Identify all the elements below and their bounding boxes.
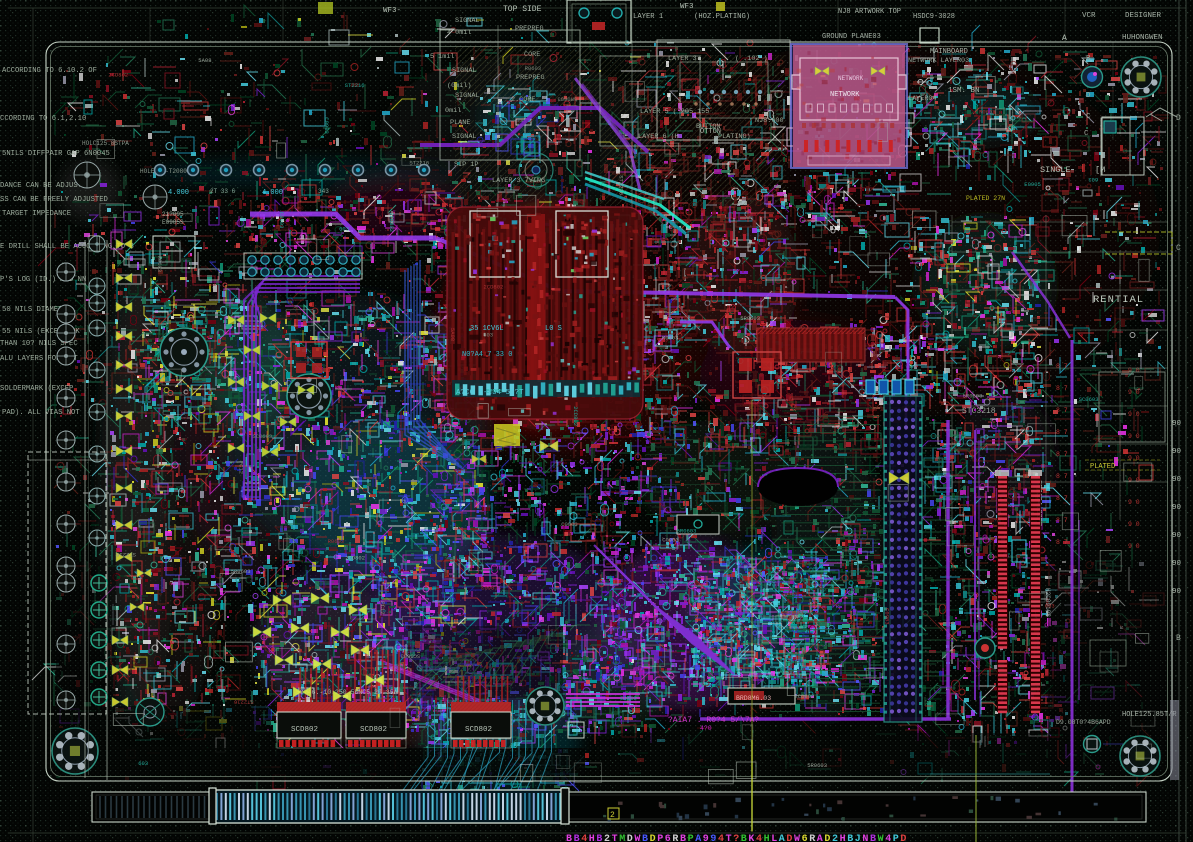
- svg-text:M: M: [619, 834, 625, 842]
- svg-text:E0905: E0905: [620, 695, 637, 702]
- svg-text:8 7: 8 7: [1056, 473, 1068, 480]
- svg-text:B: B: [642, 834, 648, 842]
- svg-text:2CD802: 2CD802: [572, 406, 579, 426]
- svg-text:H: H: [589, 834, 595, 842]
- svg-text:603: 603: [483, 332, 493, 339]
- svg-text:R0603: R0603: [787, 609, 804, 616]
- svg-text:4: 4: [581, 834, 587, 842]
- svg-text:603: 603: [339, 225, 349, 232]
- svg-text:603: 603: [138, 760, 148, 767]
- svg-text:D: D: [650, 834, 656, 842]
- svg-text:5A08: 5A08: [449, 328, 456, 341]
- svg-text:2CD802: 2CD802: [484, 284, 504, 291]
- svg-text:SCD802: SCD802: [360, 726, 387, 734]
- svg-text:2CD802: 2CD802: [795, 693, 815, 700]
- svg-text:STC3218: STC3218: [962, 407, 996, 416]
- svg-text:9 0: 9 0: [1128, 521, 1140, 528]
- svg-text:R0603: R0603: [662, 335, 679, 342]
- svg-text:9 0: 9 0: [1128, 455, 1140, 462]
- svg-text:SC0603: SC0603: [400, 652, 420, 659]
- svg-text:SCD802: SCD802: [291, 726, 318, 734]
- svg-text:NETWORK LAYER03: NETWORK LAYER03: [908, 57, 969, 65]
- svg-text:(HOZ.PLATING): (HOZ.PLATING): [694, 13, 750, 21]
- svg-text:HOLC125.8STPA: HOLC125.8STPA: [82, 140, 129, 147]
- svg-text:1SM. BN: 1SM. BN: [948, 87, 980, 95]
- svg-text:ACCORDING TO 6.10.2 OF: ACCORDING TO 6.10.2 OF: [2, 67, 97, 75]
- svg-text:9 0: 9 0: [1128, 543, 1140, 550]
- svg-text:W: W: [794, 834, 800, 842]
- svg-text:D: D: [1086, 92, 1091, 100]
- svg-text:H: H: [764, 834, 770, 842]
- svg-text:9: 9: [710, 834, 716, 842]
- svg-text:4: 4: [718, 834, 724, 842]
- svg-text:ST2216: ST2216: [234, 699, 254, 706]
- svg-text:N: N: [862, 834, 868, 842]
- svg-text:PC12: PC12: [237, 461, 244, 474]
- svg-text:4: 4: [885, 834, 891, 842]
- svg-text:PLATED 27N: PLATED 27N: [966, 195, 1005, 202]
- svg-text:[M: [M: [1095, 165, 1105, 175]
- svg-text:ST2216: ST2216: [618, 175, 625, 195]
- svg-text:BRD8M6.03: BRD8M6.03: [736, 695, 771, 702]
- svg-text:A: A: [817, 834, 823, 842]
- svg-text:603: 603: [357, 314, 367, 321]
- svg-text:2T 33 6: 2T 33 6: [210, 188, 236, 195]
- svg-text:R0603: R0603: [156, 256, 163, 273]
- svg-text:MAINBOARD: MAINBOARD: [930, 48, 968, 56]
- svg-text:4?0: 4?0: [700, 725, 712, 732]
- svg-text:D: D: [1176, 114, 1181, 123]
- svg-text:T: T: [612, 834, 618, 842]
- svg-text:6: 6: [802, 834, 808, 842]
- svg-text:H: H: [840, 834, 846, 842]
- svg-text:W: W: [634, 834, 640, 842]
- svg-text:B: B: [741, 834, 747, 842]
- svg-text:P: P: [893, 834, 899, 842]
- svg-text:SCD802: SCD802: [465, 726, 492, 734]
- svg-text:603: 603: [1045, 603, 1055, 610]
- svg-text:C0903: C0903: [278, 212, 285, 229]
- svg-text:RENTIAL: RENTIAL: [1093, 294, 1144, 306]
- svg-text:?AIA7 . R0?4 5/\7A?: ?AIA7 . R0?4 5/\7A?: [668, 716, 759, 725]
- svg-text:L: L: [771, 834, 777, 842]
- svg-text:90: 90: [1172, 504, 1182, 512]
- svg-text:SIGNAL: SIGNAL: [455, 17, 479, 25]
- svg-text:D: D: [627, 834, 633, 842]
- svg-text:C0903: C0903: [884, 608, 891, 625]
- svg-text:B: B: [596, 834, 602, 842]
- svg-text:B: B: [847, 834, 853, 842]
- svg-text:HUHONGWEN: HUHONGWEN: [1122, 34, 1163, 42]
- svg-text:NETWORK: NETWORK: [838, 75, 864, 82]
- svg-text:TARGET IMPEDANCE: TARGET IMPEDANCE: [2, 210, 71, 218]
- svg-text:4: 4: [756, 834, 762, 842]
- svg-text:90: 90: [1172, 448, 1182, 456]
- svg-text:W: W: [878, 834, 884, 842]
- svg-text:C0903: C0903: [662, 536, 679, 543]
- svg-text:90: 90: [1172, 588, 1182, 596]
- svg-text:R0603: R0603: [525, 65, 542, 72]
- svg-text:9: 9: [703, 834, 709, 842]
- svg-text:GROUND PLANE03: GROUND PLANE03: [822, 33, 881, 41]
- svg-text:5R0603: 5R0603: [963, 393, 983, 400]
- svg-text:C: C: [1176, 244, 1181, 253]
- svg-text:DESIGNER: DESIGNER: [1125, 12, 1162, 20]
- svg-text:2CD802: 2CD802: [108, 71, 128, 78]
- svg-text:N0?A4 7 33 0: N0?A4 7 33 0: [462, 351, 512, 359]
- svg-text:OTTON: OTTON: [700, 128, 721, 136]
- svg-text:E0905S: E0905S: [162, 219, 184, 226]
- svg-text:ST2216: ST2216: [409, 160, 429, 167]
- svg-text:5R0603: 5R0603: [231, 568, 251, 575]
- svg-text:D: D: [900, 834, 906, 842]
- svg-text:9 0: 9 0: [1128, 477, 1140, 484]
- svg-text:8 7: 8 7: [1056, 451, 1068, 458]
- svg-text:R0603: R0603: [979, 109, 996, 116]
- svg-text:T: T: [726, 834, 732, 842]
- svg-text:6: 6: [665, 834, 671, 842]
- svg-text:C0903: C0903: [561, 521, 578, 528]
- svg-text:E0905: E0905: [486, 388, 503, 395]
- svg-text:B: B: [574, 834, 580, 842]
- svg-text:LAYER 1: LAYER 1: [633, 13, 663, 21]
- svg-text:2: 2: [610, 811, 615, 820]
- svg-text:D: D: [824, 834, 830, 842]
- svg-text:4.000: 4.000: [168, 189, 189, 197]
- svg-text:4.000: 4.000: [262, 189, 283, 197]
- svg-text:A: A: [695, 834, 701, 842]
- svg-text:SS CAN BE FREELY ADJUSTED: SS CAN BE FREELY ADJUSTED: [0, 196, 108, 204]
- svg-text:5R0603: 5R0603: [770, 567, 777, 587]
- svg-text:A: A: [1062, 34, 1067, 43]
- svg-text:SC0603: SC0603: [1079, 396, 1099, 403]
- svg-text:C: C: [1084, 130, 1089, 138]
- svg-text:WF3: WF3: [680, 3, 694, 11]
- svg-text:5NILS DIFFPAIR GAP 6N0045: 5NILS DIFFPAIR GAP 6N0045: [2, 150, 110, 158]
- svg-text:2CD802: 2CD802: [345, 555, 365, 562]
- svg-text:R0603: R0603: [328, 538, 345, 545]
- svg-text:9 0: 9 0: [1128, 411, 1140, 418]
- svg-text:P: P: [688, 834, 694, 842]
- svg-text:8 7: 8 7: [1056, 385, 1068, 392]
- svg-text:8 7: 8 7: [1056, 495, 1068, 502]
- svg-text:E DRILL SHALL BE ACCORDING TO: E DRILL SHALL BE ACCORDING TO B: [0, 243, 134, 251]
- svg-text:B: B: [1176, 634, 1181, 643]
- svg-text:TOP SIDE: TOP SIDE: [503, 5, 542, 14]
- svg-text:WF3-: WF3-: [383, 7, 401, 15]
- svg-text:90: 90: [1172, 476, 1182, 484]
- svg-text:D: D: [786, 834, 792, 842]
- svg-text:0mil: 0mil: [445, 107, 461, 115]
- svg-text:B: B: [680, 834, 686, 842]
- svg-text:B: B: [1086, 55, 1091, 63]
- svg-text:A: A: [779, 834, 785, 842]
- svg-text:ST2216: ST2216: [116, 551, 136, 558]
- svg-text:LAYER04: LAYER04: [908, 95, 937, 103]
- svg-text:9 0: 9 0: [1128, 389, 1140, 396]
- svg-text:5R0603: 5R0603: [557, 95, 577, 102]
- svg-text:343: 343: [318, 188, 329, 195]
- svg-text:8 7: 8 7: [1056, 363, 1068, 370]
- svg-text:5 1mil: 5 1mil: [430, 53, 454, 61]
- svg-text:5A08: 5A08: [198, 57, 211, 64]
- svg-text:2: 2: [604, 834, 610, 842]
- svg-text:D9.08T0?4B6APD: D9.08T0?4B6APD: [1056, 719, 1111, 726]
- svg-text:SC0603: SC0603: [481, 584, 501, 591]
- svg-text:L0 S: L0 S: [545, 325, 562, 333]
- svg-text:PAD). ALL VIAS NOT: PAD). ALL VIAS NOT: [2, 409, 80, 417]
- svg-text:PREPREG: PREPREG: [515, 25, 544, 33]
- svg-text:J: J: [855, 834, 861, 842]
- svg-text:R: R: [809, 834, 815, 842]
- svg-text:2: 2: [832, 834, 838, 842]
- svg-text:8 7: 8 7: [1056, 429, 1068, 436]
- svg-text:CCORDING TO 6.1,2.10: CCORDING TO 6.1,2.10: [0, 115, 86, 123]
- svg-text:9 0: 9 0: [1128, 499, 1140, 506]
- svg-text:603: 603: [1088, 176, 1098, 183]
- svg-text:8 7: 8 7: [1056, 407, 1068, 414]
- svg-text:NJ8 ARTWORK TOP: NJ8 ARTWORK TOP: [838, 8, 901, 16]
- svg-text:R: R: [672, 834, 678, 842]
- svg-text:5R0603: 5R0603: [740, 315, 760, 322]
- svg-text:5R0603: 5R0603: [807, 762, 827, 769]
- svg-text:SC0603: SC0603: [252, 433, 272, 440]
- svg-text:B: B: [870, 834, 876, 842]
- svg-text:90: 90: [1172, 560, 1182, 568]
- svg-text:8 7: 8 7: [1056, 539, 1068, 546]
- svg-text:ST2216: ST2216: [345, 82, 365, 89]
- svg-text:90: 90: [1172, 532, 1182, 540]
- svg-text:B: B: [566, 834, 572, 842]
- svg-text:21?095: 21?095: [162, 211, 184, 218]
- svg-text:5R0603: 5R0603: [677, 527, 697, 534]
- svg-text:C: C: [1086, 113, 1091, 121]
- svg-text:90: 90: [1172, 420, 1182, 428]
- svg-text:9 0: 9 0: [1128, 433, 1140, 440]
- svg-text:HSDC9-3028: HSDC9-3028: [913, 13, 955, 21]
- svg-text:VCR: VCR: [1082, 12, 1096, 20]
- svg-text:SINGLE: SINGLE: [1040, 165, 1071, 175]
- svg-text:PC12: PC12: [379, 601, 386, 614]
- svg-text:2CD802: 2CD802: [388, 212, 395, 232]
- svg-text:P: P: [657, 834, 663, 842]
- svg-text:HOLE125.85T/R: HOLE125.85T/R: [1122, 711, 1177, 719]
- svg-text:?: ?: [733, 834, 739, 842]
- svg-text:E0905: E0905: [1024, 181, 1041, 188]
- svg-text:C0903: C0903: [323, 117, 330, 134]
- svg-text:K: K: [748, 834, 754, 842]
